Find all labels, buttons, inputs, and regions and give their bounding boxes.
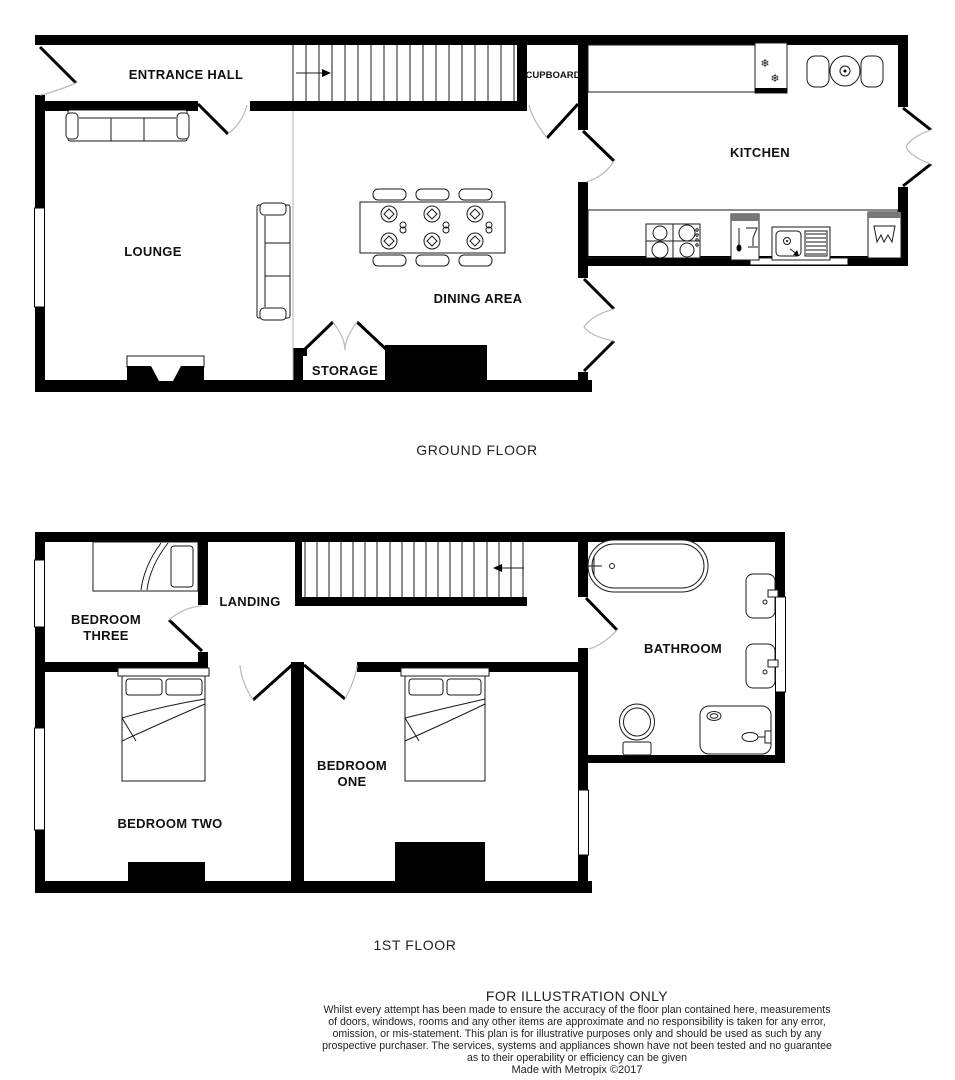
first-floor-plan: LANDING BEDROOM THREE BATHROOM BEDROOM T… — [35, 532, 786, 893]
staircase-down-icon — [305, 542, 524, 597]
bedroom-three-label-line2: THREE — [83, 628, 129, 643]
bedroom-three-label-line1: BEDROOM — [71, 612, 141, 627]
disclaimer-line: of doors, windows, rooms and any other i… — [287, 1016, 867, 1028]
fireplace-icon — [127, 356, 204, 392]
disclaimer-line: Whilst every attempt has been made to en… — [287, 1004, 867, 1016]
svg-text:❄: ❄ — [770, 73, 779, 85]
bedroom-two-window — [35, 728, 45, 830]
single-bed-icon — [93, 542, 198, 591]
lounge-label: LOUNGE — [124, 244, 181, 259]
bedroom-three-window — [35, 560, 45, 627]
storage-label: STORAGE — [312, 363, 378, 378]
floorplan-canvas: ❄ ❄ — [0, 0, 955, 1080]
kitchen-table-icon — [807, 56, 883, 87]
bathroom-window — [776, 597, 786, 692]
disclaimer-line: prospective purchaser. The services, sys… — [287, 1040, 867, 1052]
kitchen-door-swing — [583, 131, 614, 182]
cupboard-door-swing — [529, 104, 578, 138]
bedroom-two-door-swing — [240, 665, 292, 700]
dining-french-door-swing — [584, 279, 614, 371]
dining-table-icon — [360, 189, 505, 266]
double-bed-two-icon — [118, 668, 209, 781]
fridge-freezer-icon: ❄ ❄ — [755, 43, 787, 93]
footer-disclaimer: FOR ILLUSTRATION ONLY Whilst every attem… — [287, 988, 867, 1077]
ground-floor-title: GROUND FLOOR — [416, 442, 538, 458]
sofa-2-icon — [257, 203, 290, 320]
sink-icon — [772, 227, 830, 260]
bathtub-icon — [588, 540, 708, 592]
dining-area-label: DINING AREA — [434, 291, 523, 306]
footer-title: FOR ILLUSTRATION ONLY — [287, 988, 867, 1004]
kitchen-label: KITCHEN — [730, 145, 790, 160]
ground-floor-plan: ❄ ❄ — [35, 35, 932, 392]
kitchen-counter-top — [588, 45, 757, 92]
disclaimer-line: as to their operability or efficiency ca… — [287, 1052, 867, 1064]
sofa-icon — [66, 110, 189, 141]
cupboard-label: CUPBOARD — [526, 70, 581, 81]
double-bed-one-icon — [401, 668, 489, 781]
basin-2-icon — [746, 644, 778, 688]
svg-text:❄: ❄ — [760, 58, 769, 70]
stairs-direction-arrow — [322, 69, 331, 77]
disclaimer-line: omission, or mis-statement. This plan is… — [287, 1028, 867, 1040]
bedroom-one-door-swing — [304, 665, 357, 699]
kitchen-back-door-swing — [903, 108, 931, 186]
bathroom-label: BATHROOM — [644, 641, 722, 656]
footer-credit: Made with Metropix ©2017 — [287, 1064, 867, 1077]
basin-icon — [746, 574, 778, 618]
bedroom-one-label-line1: BEDROOM — [317, 758, 387, 773]
lounge-window — [35, 208, 45, 307]
lounge-door-swing — [198, 104, 247, 134]
landing-label: LANDING — [219, 594, 280, 609]
bedroom-three-door-swing — [169, 606, 202, 651]
chimney-breast-bedroom-two — [128, 862, 205, 893]
bathroom-door-swing — [586, 598, 617, 649]
stairs-direction-arrow — [493, 564, 502, 572]
staircase-up-icon — [293, 45, 514, 101]
entrance-hall-label: ENTRANCE HALL — [129, 67, 243, 82]
shower-icon — [700, 706, 771, 754]
bedroom-one-label-line2: ONE — [337, 774, 366, 789]
wine-cooler-icon — [731, 214, 759, 260]
toilet-icon — [620, 704, 655, 755]
chimney-breast-bedroom-one — [395, 842, 485, 893]
hob-icon — [646, 224, 700, 258]
kitchen-chair-icon — [861, 56, 883, 87]
first-floor-title: 1ST FLOOR — [374, 937, 457, 953]
bedroom-one-window — [579, 790, 589, 855]
kitchen-chair-icon — [807, 56, 829, 87]
storage-double-door-swing — [303, 322, 388, 351]
washing-machine-icon — [868, 212, 901, 258]
front-door-swing — [40, 47, 76, 95]
bedroom-two-label: BEDROOM TWO — [117, 816, 222, 831]
